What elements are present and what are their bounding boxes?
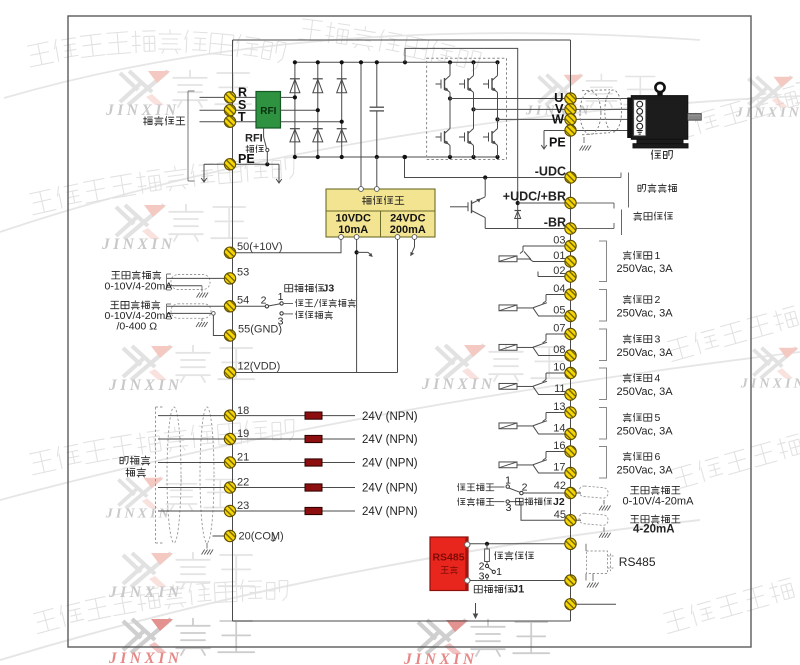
svg-text:RS485: RS485 xyxy=(619,555,656,569)
svg-text:J1: J1 xyxy=(512,583,524,595)
svg-text:12(VDD): 12(VDD) xyxy=(238,361,281,373)
svg-text:17: 17 xyxy=(553,462,565,474)
svg-text:JINXIN: JINXIN xyxy=(421,376,496,393)
svg-text:0-10V/4-20mA: 0-10V/4-20mA xyxy=(105,281,173,293)
svg-text:JINXIN: JINXIN xyxy=(735,105,800,120)
svg-text:JINXIN: JINXIN xyxy=(108,650,183,665)
svg-text:3: 3 xyxy=(506,502,512,514)
svg-text:14: 14 xyxy=(553,423,565,435)
svg-text:250Vac, 3A: 250Vac, 3A xyxy=(617,386,674,398)
svg-text:T: T xyxy=(238,110,246,124)
svg-text:55(GND): 55(GND) xyxy=(238,324,282,336)
svg-text:1: 1 xyxy=(496,566,502,578)
svg-text:21: 21 xyxy=(237,452,249,464)
svg-text:W: W xyxy=(552,112,565,127)
svg-text:JINXIN: JINXIN xyxy=(105,506,172,521)
svg-text:JINXIN: JINXIN xyxy=(108,584,183,601)
svg-text:+UDC/+BR: +UDC/+BR xyxy=(503,190,566,204)
svg-text:2: 2 xyxy=(261,295,267,307)
svg-text:4-20mA: 4-20mA xyxy=(633,523,675,535)
svg-text:-UDC: -UDC xyxy=(535,165,566,179)
svg-text:3: 3 xyxy=(655,334,661,346)
svg-text:20(COM): 20(COM) xyxy=(239,531,284,543)
svg-text:01: 01 xyxy=(553,250,565,262)
svg-text:JINXIN: JINXIN xyxy=(403,651,478,665)
svg-text:RFI: RFI xyxy=(260,106,276,117)
svg-text:24V (NPN): 24V (NPN) xyxy=(362,483,418,495)
svg-text:250Vac, 3A: 250Vac, 3A xyxy=(617,425,674,437)
svg-text:6: 6 xyxy=(655,451,661,463)
svg-text:4: 4 xyxy=(655,373,661,385)
svg-text:13: 13 xyxy=(553,401,565,413)
svg-text:24V (NPN): 24V (NPN) xyxy=(362,411,418,423)
svg-text:250Vac, 3A: 250Vac, 3A xyxy=(617,347,674,359)
svg-text:23: 23 xyxy=(237,500,249,512)
svg-text:3: 3 xyxy=(278,316,284,328)
svg-text:J3: J3 xyxy=(323,283,335,295)
svg-text:11: 11 xyxy=(554,383,565,395)
svg-text:/0-400 Ω: /0-400 Ω xyxy=(117,320,158,332)
svg-text:3: 3 xyxy=(479,571,485,583)
svg-text:05: 05 xyxy=(553,305,565,317)
svg-text:50(+10V): 50(+10V) xyxy=(237,241,283,253)
svg-text:250Vac, 3A: 250Vac, 3A xyxy=(617,464,674,476)
svg-text:10VDC: 10VDC xyxy=(335,213,371,225)
svg-text:2: 2 xyxy=(655,294,661,306)
svg-text:5: 5 xyxy=(655,412,661,424)
svg-text:10mA: 10mA xyxy=(338,224,368,236)
svg-text:19: 19 xyxy=(237,428,249,440)
svg-text:22: 22 xyxy=(237,477,249,489)
svg-text:RS485: RS485 xyxy=(432,552,464,564)
svg-text:JINXIN: JINXIN xyxy=(105,102,180,119)
svg-text:250Vac, 3A: 250Vac, 3A xyxy=(617,307,674,319)
svg-text:JINXIN: JINXIN xyxy=(101,236,176,253)
svg-text:1: 1 xyxy=(278,291,284,303)
svg-text:08: 08 xyxy=(553,344,565,356)
svg-text:10: 10 xyxy=(553,362,565,374)
svg-text:42: 42 xyxy=(554,480,566,492)
svg-text:JINXIN: JINXIN xyxy=(740,376,800,391)
svg-text:1: 1 xyxy=(505,475,511,487)
svg-text:J2: J2 xyxy=(553,496,565,508)
svg-text:200mA: 200mA xyxy=(390,224,426,236)
svg-text:03: 03 xyxy=(553,235,565,247)
svg-text:07: 07 xyxy=(553,323,565,335)
svg-text:0-10V/4-20mA: 0-10V/4-20mA xyxy=(623,495,695,507)
svg-text:45: 45 xyxy=(554,509,566,521)
svg-text:02: 02 xyxy=(553,265,565,277)
svg-text:24V (NPN): 24V (NPN) xyxy=(362,434,418,446)
svg-text:JINXIN: JINXIN xyxy=(108,377,183,394)
svg-text:R: R xyxy=(238,85,247,99)
svg-text:24V (NPN): 24V (NPN) xyxy=(362,506,418,518)
svg-text:53: 53 xyxy=(237,267,249,279)
svg-text:PE: PE xyxy=(238,152,255,166)
svg-text:2: 2 xyxy=(522,482,528,494)
svg-text:250Vac, 3A: 250Vac, 3A xyxy=(617,263,674,275)
svg-text:24V (NPN): 24V (NPN) xyxy=(362,458,418,470)
svg-text:54: 54 xyxy=(237,294,249,306)
svg-text:18: 18 xyxy=(237,405,249,417)
svg-text:24VDC: 24VDC xyxy=(390,213,426,225)
svg-text:PE: PE xyxy=(549,136,566,150)
svg-text:1: 1 xyxy=(655,250,661,262)
svg-text:-BR: -BR xyxy=(544,216,566,230)
svg-text:16: 16 xyxy=(553,440,565,452)
svg-text:04: 04 xyxy=(553,283,565,295)
svg-text:RFI: RFI xyxy=(245,133,263,145)
